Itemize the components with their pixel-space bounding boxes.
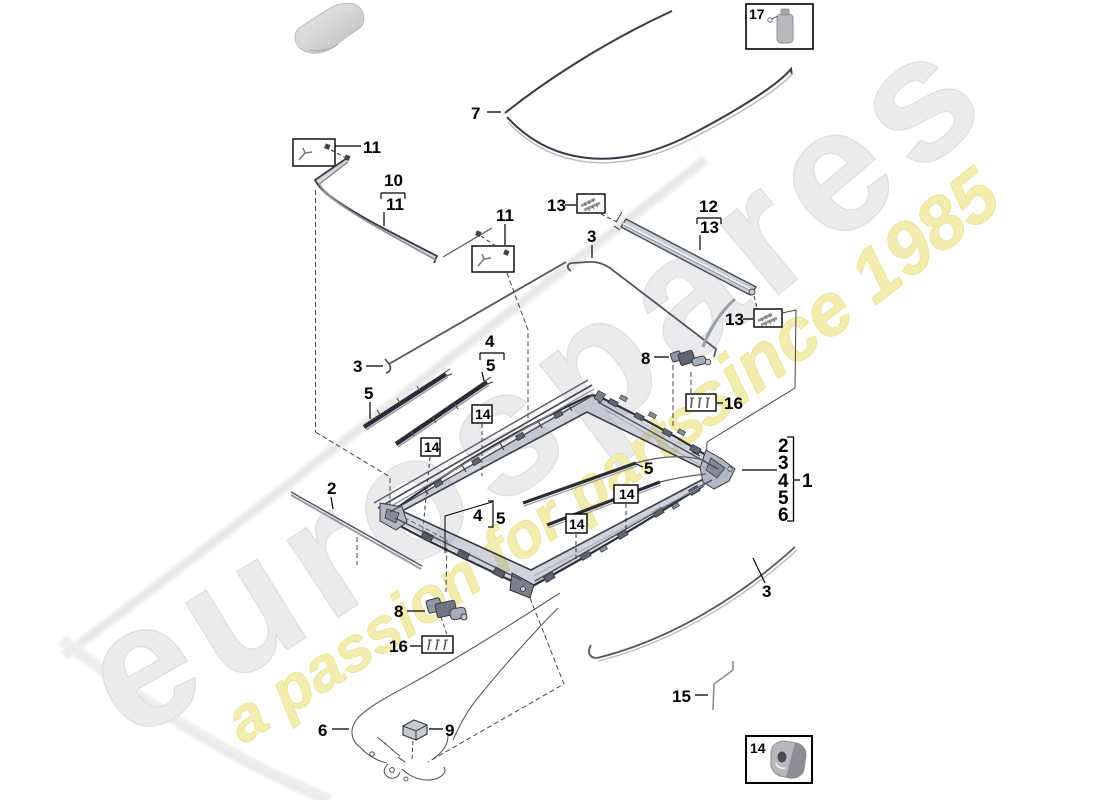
svg-text:7: 7 [471,104,480,123]
svg-text:17: 17 [749,6,765,22]
svg-text:5: 5 [644,459,653,478]
svg-text:12: 12 [699,197,718,216]
svg-text:11: 11 [363,138,381,157]
svg-text:5: 5 [364,384,373,403]
svg-text:10: 10 [384,171,403,190]
svg-text:13: 13 [547,196,566,215]
svg-text:eurospares: eurospares [51,0,1027,775]
svg-text:3: 3 [587,227,596,246]
svg-text:15: 15 [672,687,691,706]
svg-text:1: 1 [802,471,813,492]
svg-text:14: 14 [424,439,440,455]
svg-text:6: 6 [778,505,789,526]
svg-text:9: 9 [445,721,454,740]
svg-text:14: 14 [750,740,766,756]
svg-text:14: 14 [569,516,585,532]
svg-text:3: 3 [762,582,771,601]
svg-text:8: 8 [641,349,650,368]
svg-text:8: 8 [394,602,403,621]
svg-text:16: 16 [724,394,743,413]
svg-text:13: 13 [725,310,744,329]
svg-text:11: 11 [386,195,404,214]
svg-text:13: 13 [700,218,719,237]
svg-text:5: 5 [496,509,505,528]
svg-text:6: 6 [318,721,327,740]
svg-text:16: 16 [389,637,408,656]
svg-text:2: 2 [327,479,336,498]
svg-text:3: 3 [353,357,362,376]
svg-text:4: 4 [473,506,483,525]
svg-text:11: 11 [496,206,514,225]
svg-text:4: 4 [485,332,495,351]
svg-text:5: 5 [486,356,495,375]
svg-text:14: 14 [619,486,635,502]
svg-text:14: 14 [475,406,491,422]
